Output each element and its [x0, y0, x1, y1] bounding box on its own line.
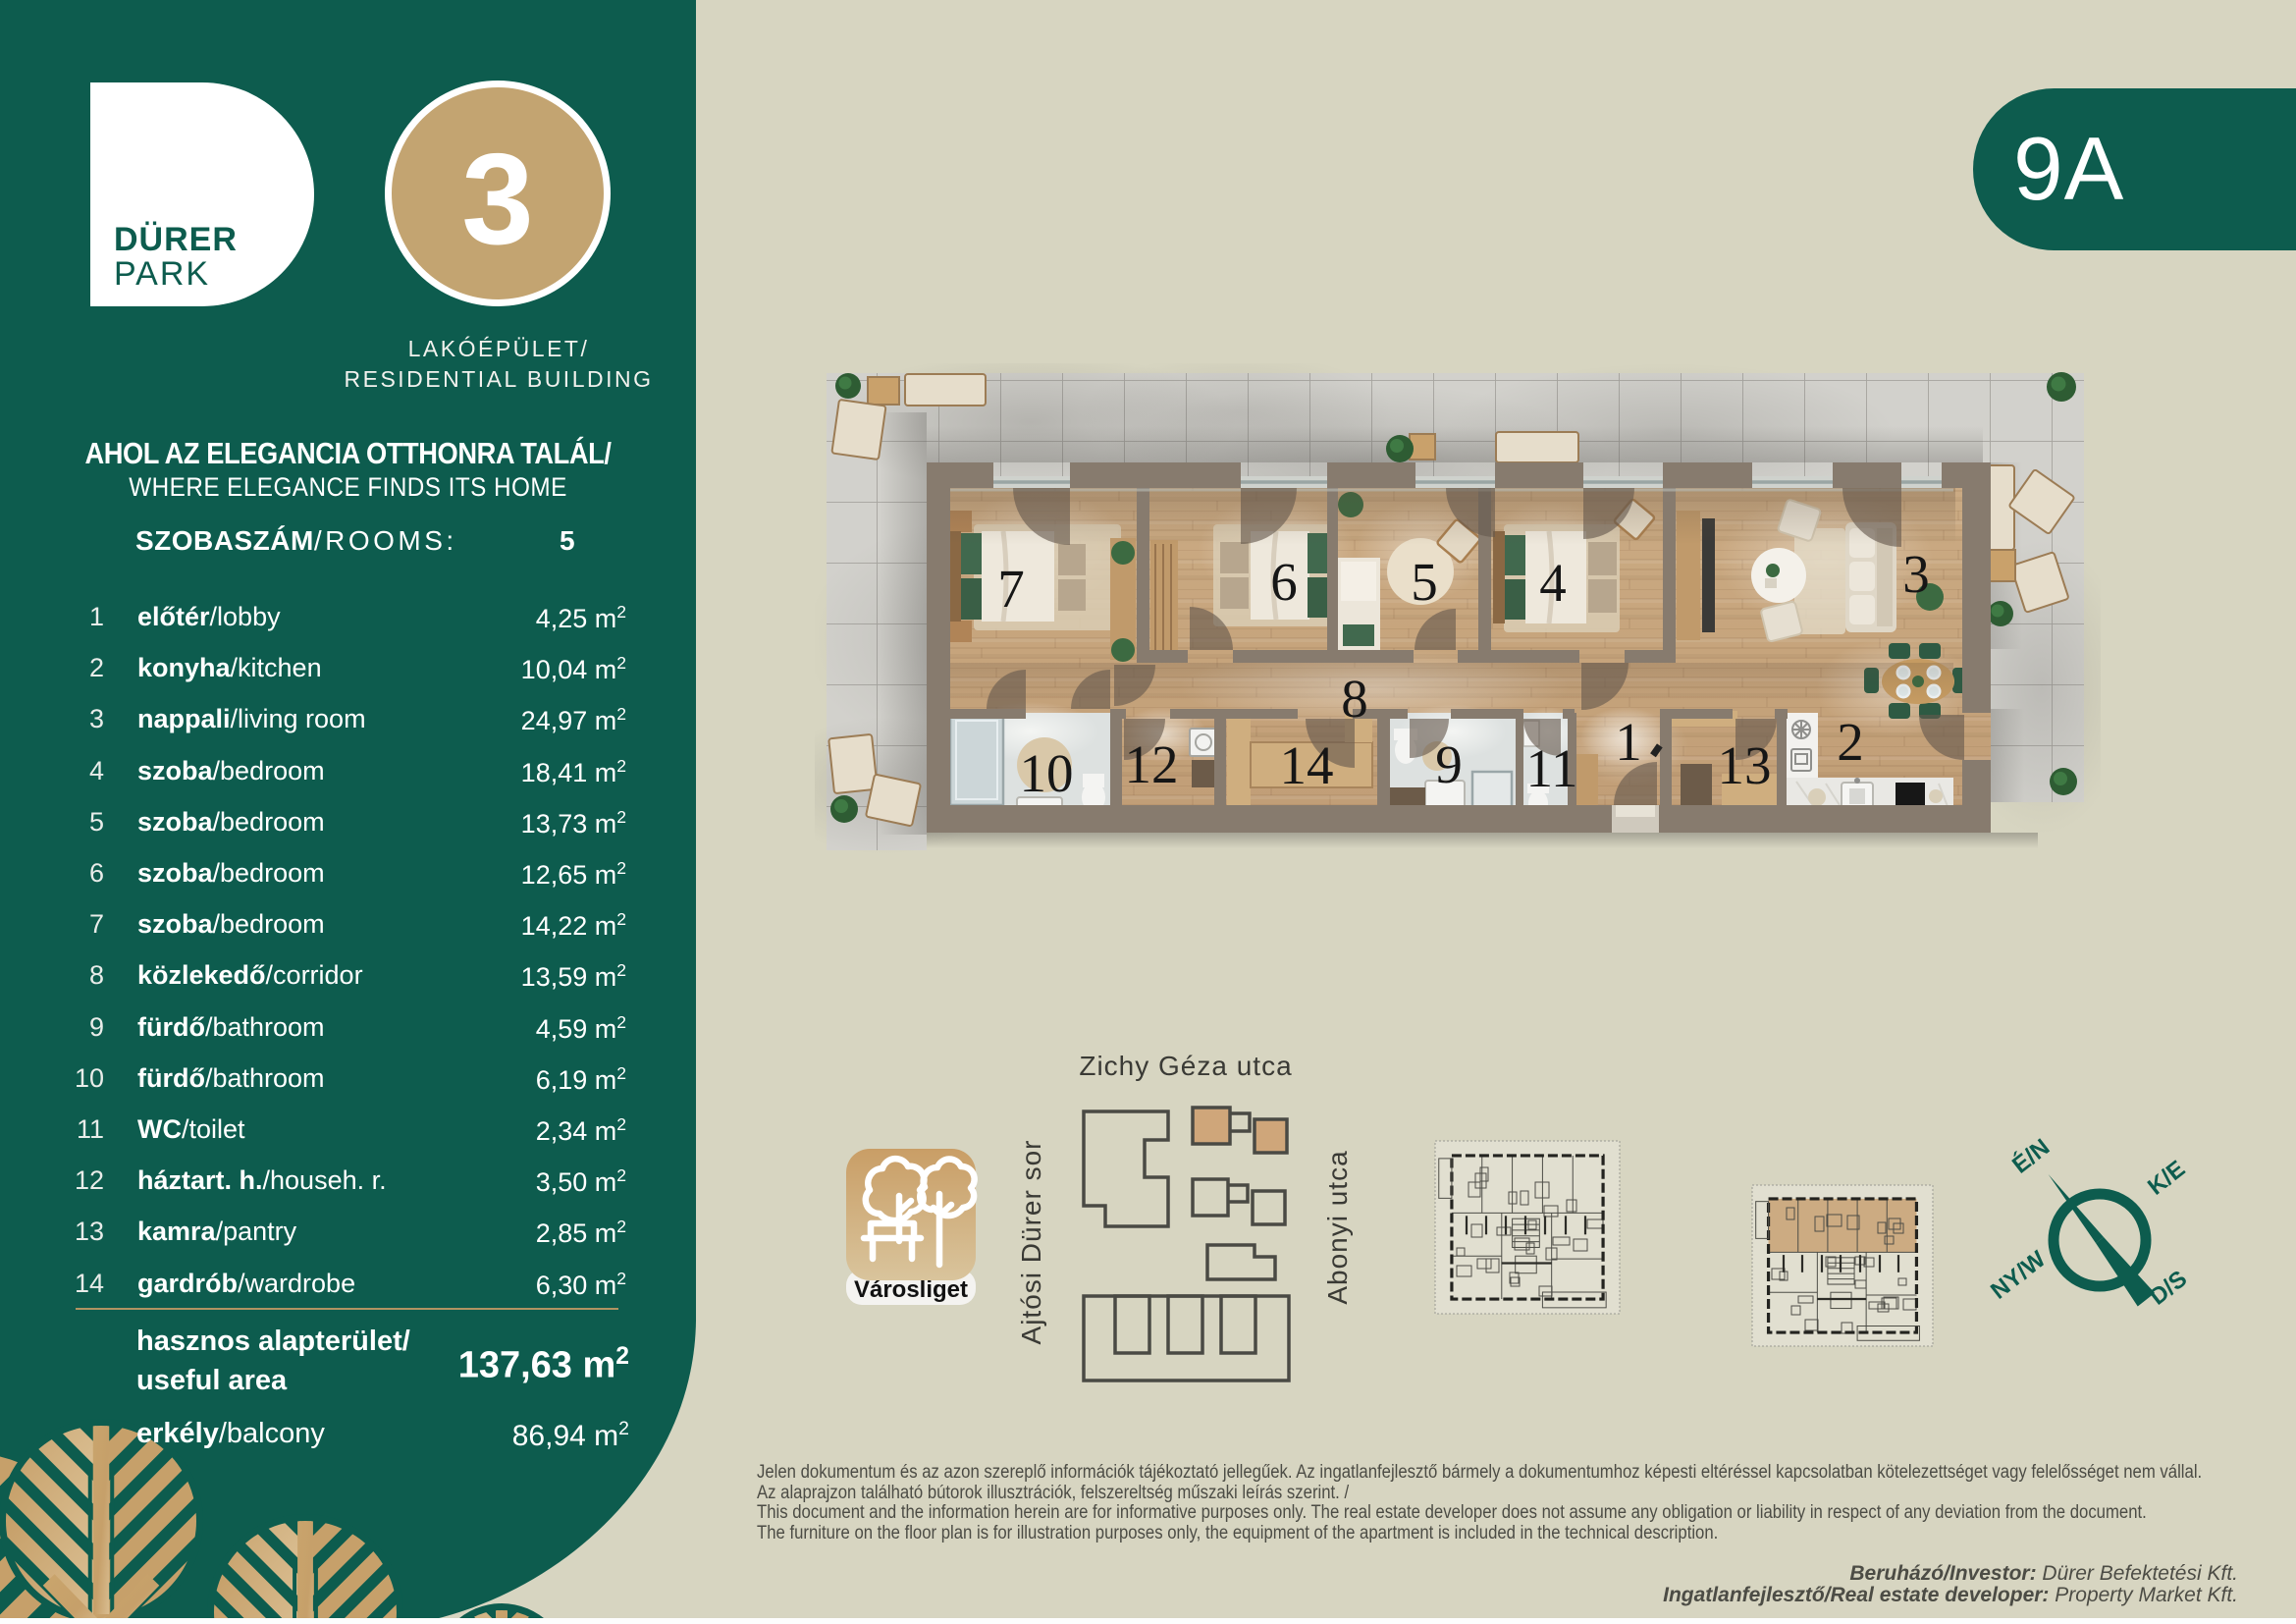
- svg-text:Városliget: Városliget: [854, 1276, 968, 1303]
- svg-text:É/N: É/N: [2006, 1133, 2055, 1179]
- svg-text:7: 7: [997, 559, 1025, 619]
- svg-text:12: 12: [1125, 734, 1179, 794]
- svg-text:Ajtósi Dürer sor: Ajtósi Dürer sor: [1016, 1140, 1046, 1345]
- svg-text:13: 13: [1718, 735, 1772, 795]
- svg-text:3: 3: [1902, 544, 1930, 604]
- svg-text:2: 2: [1837, 712, 1864, 772]
- svg-text:D/S: D/S: [2145, 1266, 2192, 1311]
- svg-text:8: 8: [1341, 669, 1368, 729]
- svg-text:5: 5: [1411, 552, 1438, 612]
- svg-text:NY/W: NY/W: [1986, 1246, 2051, 1305]
- svg-text:4: 4: [1539, 553, 1567, 613]
- svg-text:10: 10: [1020, 743, 1074, 803]
- svg-text:6: 6: [1270, 552, 1298, 612]
- svg-text:K/E: K/E: [2143, 1156, 2190, 1201]
- svg-text:1: 1: [1615, 712, 1642, 772]
- svg-text:Abonyi utca: Abonyi utca: [1322, 1150, 1353, 1304]
- svg-text:9: 9: [1435, 734, 1463, 794]
- svg-text:14: 14: [1280, 735, 1334, 795]
- svg-text:11: 11: [1526, 738, 1578, 798]
- svg-text:Zichy Géza utca: Zichy Géza utca: [1079, 1051, 1292, 1081]
